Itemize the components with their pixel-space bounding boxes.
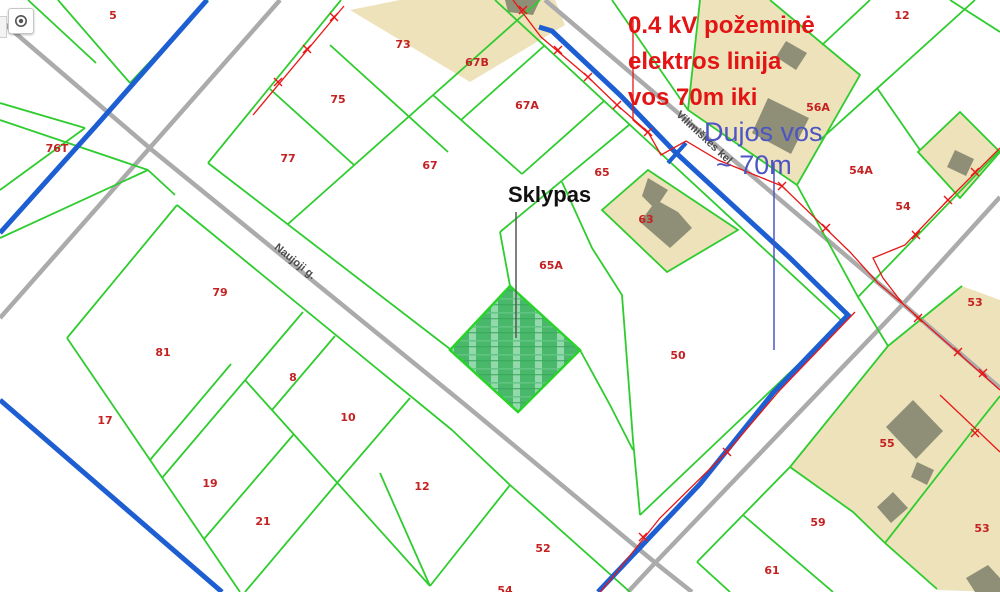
edge-panel-sliver <box>0 16 7 38</box>
parcel-label: 65 <box>594 166 609 179</box>
parcel-label: 67B <box>465 56 489 69</box>
highlighted-parcel[interactable] <box>450 286 580 412</box>
parcel-label: 65A <box>539 259 563 272</box>
parcel-label: 19 <box>202 477 217 490</box>
parcel-label: 21 <box>255 515 270 528</box>
parcel-label: 53 <box>974 522 989 535</box>
parcel-label: 79 <box>212 286 227 299</box>
locate-button[interactable] <box>8 8 34 34</box>
parcel-label: 59 <box>810 516 825 529</box>
parcel-label: 75 <box>330 93 345 106</box>
parcel-label: 54 <box>497 584 513 592</box>
parcel-label: 17 <box>97 414 112 427</box>
parcel-label: 76T <box>46 142 69 155</box>
map-canvas[interactable]: 576T7367B7567A7767656356A1254A545365A507… <box>0 0 1000 592</box>
parcel-label: 56A <box>806 101 830 114</box>
parcel-label: 67A <box>515 99 539 112</box>
parcel-label: 63 <box>638 213 653 226</box>
parcel-label: 12 <box>414 480 429 493</box>
parcel-label: 81 <box>155 346 170 359</box>
parcel-label: 55 <box>879 437 894 450</box>
parcel-label: 12 <box>894 9 909 22</box>
parcel-label: 8 <box>289 371 297 384</box>
map-layers: 576T7367B7567A7767656356A1254A545365A507… <box>0 0 1000 592</box>
parcel-label: 61 <box>764 564 779 577</box>
parcel-label: 54 <box>895 200 911 213</box>
parcel-label: 5 <box>109 9 117 22</box>
parcel-label: 73 <box>395 38 410 51</box>
parcel-label: 53 <box>967 296 982 309</box>
street-label: Naujoji g. <box>272 241 318 281</box>
parcel-label: 77 <box>280 152 295 165</box>
parcel-label: 50 <box>670 349 686 362</box>
target-icon <box>13 13 29 29</box>
parcel-label: 67 <box>422 159 437 172</box>
parcel-label: 52 <box>535 542 550 555</box>
parcel-label: 54A <box>849 164 873 177</box>
parcel-label: 10 <box>340 411 356 424</box>
